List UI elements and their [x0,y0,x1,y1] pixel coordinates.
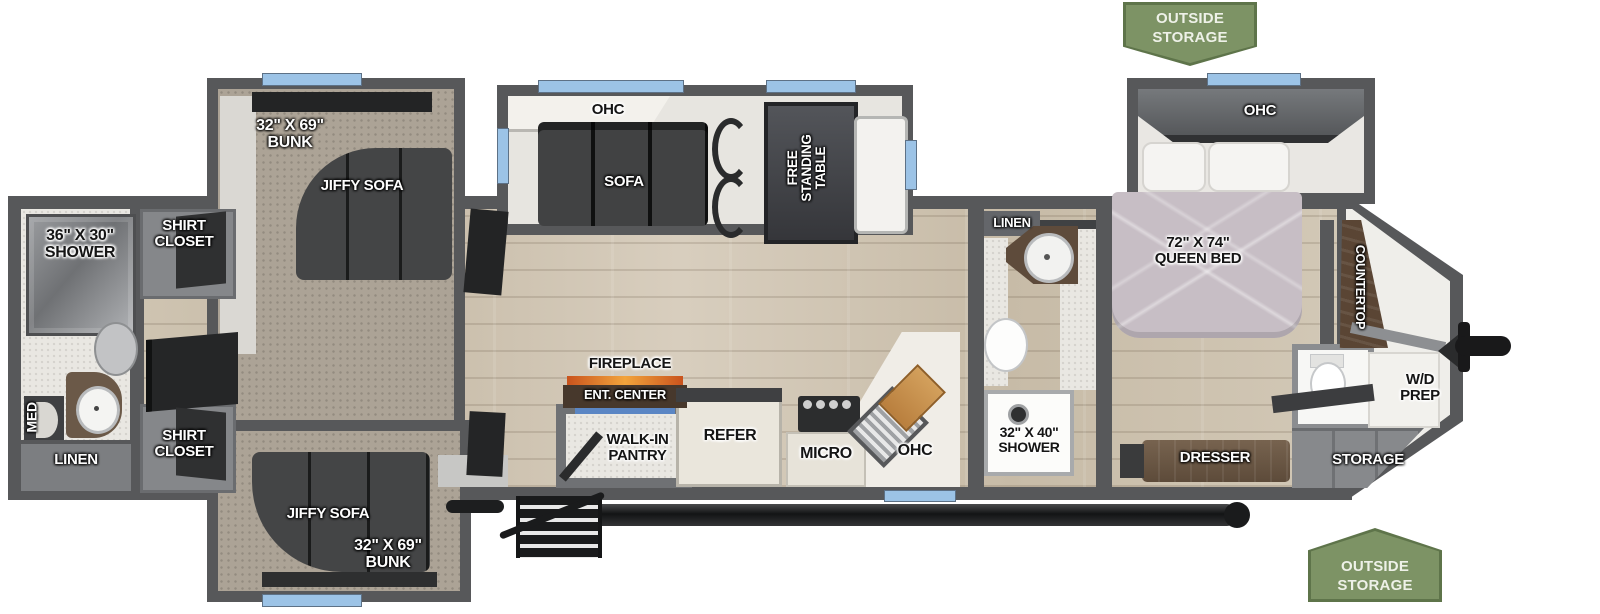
mid-shower-label: 32" X 40" SHOWER [984,425,1074,454]
jiffy-sofa-top-label: JIFFY SOFA [302,178,422,194]
rear-linen-label: LINEN [24,452,128,468]
entry-door-open [463,209,508,296]
stove-burners [803,400,855,409]
dinette-bench [854,116,908,234]
bedroom-front-wall [1320,220,1334,350]
rear-sink-drain [94,406,99,411]
storage-label: STORAGE [1308,452,1428,468]
grab-handle [446,500,504,513]
dresser-label: DRESSER [1150,450,1280,466]
free-standing-table-label: FREE STANDING TABLE [786,103,830,233]
med-label: MED [25,387,40,447]
bunkroom-top-shelf [252,92,432,112]
walkin-pantry-label: WALK-IN PANTRY [585,432,690,464]
awning-end-cap [1224,502,1250,528]
bunk-top-label: 32" X 69" BUNK [230,118,350,152]
mid-linen-label: LINEN [984,216,1040,230]
rear-shower-label: 36" X 30" SHOWER [30,228,130,262]
window [884,490,956,502]
ohc-kitchen-label: OHC [880,443,950,460]
dresser-end-cabinet [1120,444,1144,478]
hitch-pin [1455,336,1511,356]
window [538,80,684,93]
window [766,80,856,93]
midbath-toilet [984,318,1028,372]
rear-toilet [94,322,138,376]
bed-pillow-right [1208,142,1290,192]
outside-storage-label: OUTSIDE STORAGE [1308,558,1442,596]
shirt-closet-top-label: SHIRT CLOSET [138,218,230,250]
entry-screen-door [466,411,505,477]
midbath-left-wall [968,209,984,487]
outside-storage-banner-bottom: OUTSIDE STORAGE [1308,528,1442,602]
fireplace-label: FIREPLACE [570,356,690,372]
midbath-shower-drain [1008,404,1029,425]
floorplan-canvas: OUTSIDE STORAGE OUTSIDE STORAGE 36" X 30… [0,0,1600,614]
window [905,140,917,190]
entertainment-center-trim [575,408,675,414]
refer-label: REFER [680,428,780,445]
window [1207,73,1301,86]
queen-bed-label: 72" X 74" QUEEN BED [1133,235,1263,267]
midbath-sink-drain [1044,254,1050,260]
countertop-label: COUNTERTOP [1346,227,1366,347]
dinette-chair-2 [712,176,750,238]
outside-storage-label: OUTSIDE STORAGE [1123,10,1257,48]
bunk-bottom-label: 32" X 69" BUNK [328,538,448,572]
jiffy-sofa-bottom-label: JIFFY SOFA [268,506,388,522]
window [262,594,362,607]
window [497,128,509,184]
sofa-label: SOFA [574,174,674,190]
bunkroom-bottom-shelf [262,572,437,587]
outside-storage-banner-top: OUTSIDE STORAGE [1123,2,1257,66]
window [262,73,362,86]
wd-prep-label: W/D PREP [1385,372,1455,404]
awning-rail [590,504,1238,526]
midbath-right-wall [1096,209,1112,487]
fireplace-flame [567,376,683,385]
refrigerator-top [676,388,782,402]
ent-center-label: ENT. CENTER [563,388,687,402]
bed-pillow-left [1142,142,1206,192]
micro-label: MICRO [786,446,866,463]
dinette-chair-1 [712,118,750,180]
ohc-living-label: OHC [568,102,648,118]
ohc-bedroom-label: OHC [1215,103,1305,119]
shirt-closet-bottom-label: SHIRT CLOSET [138,428,230,460]
wardrobe-mirror-door [146,332,238,412]
